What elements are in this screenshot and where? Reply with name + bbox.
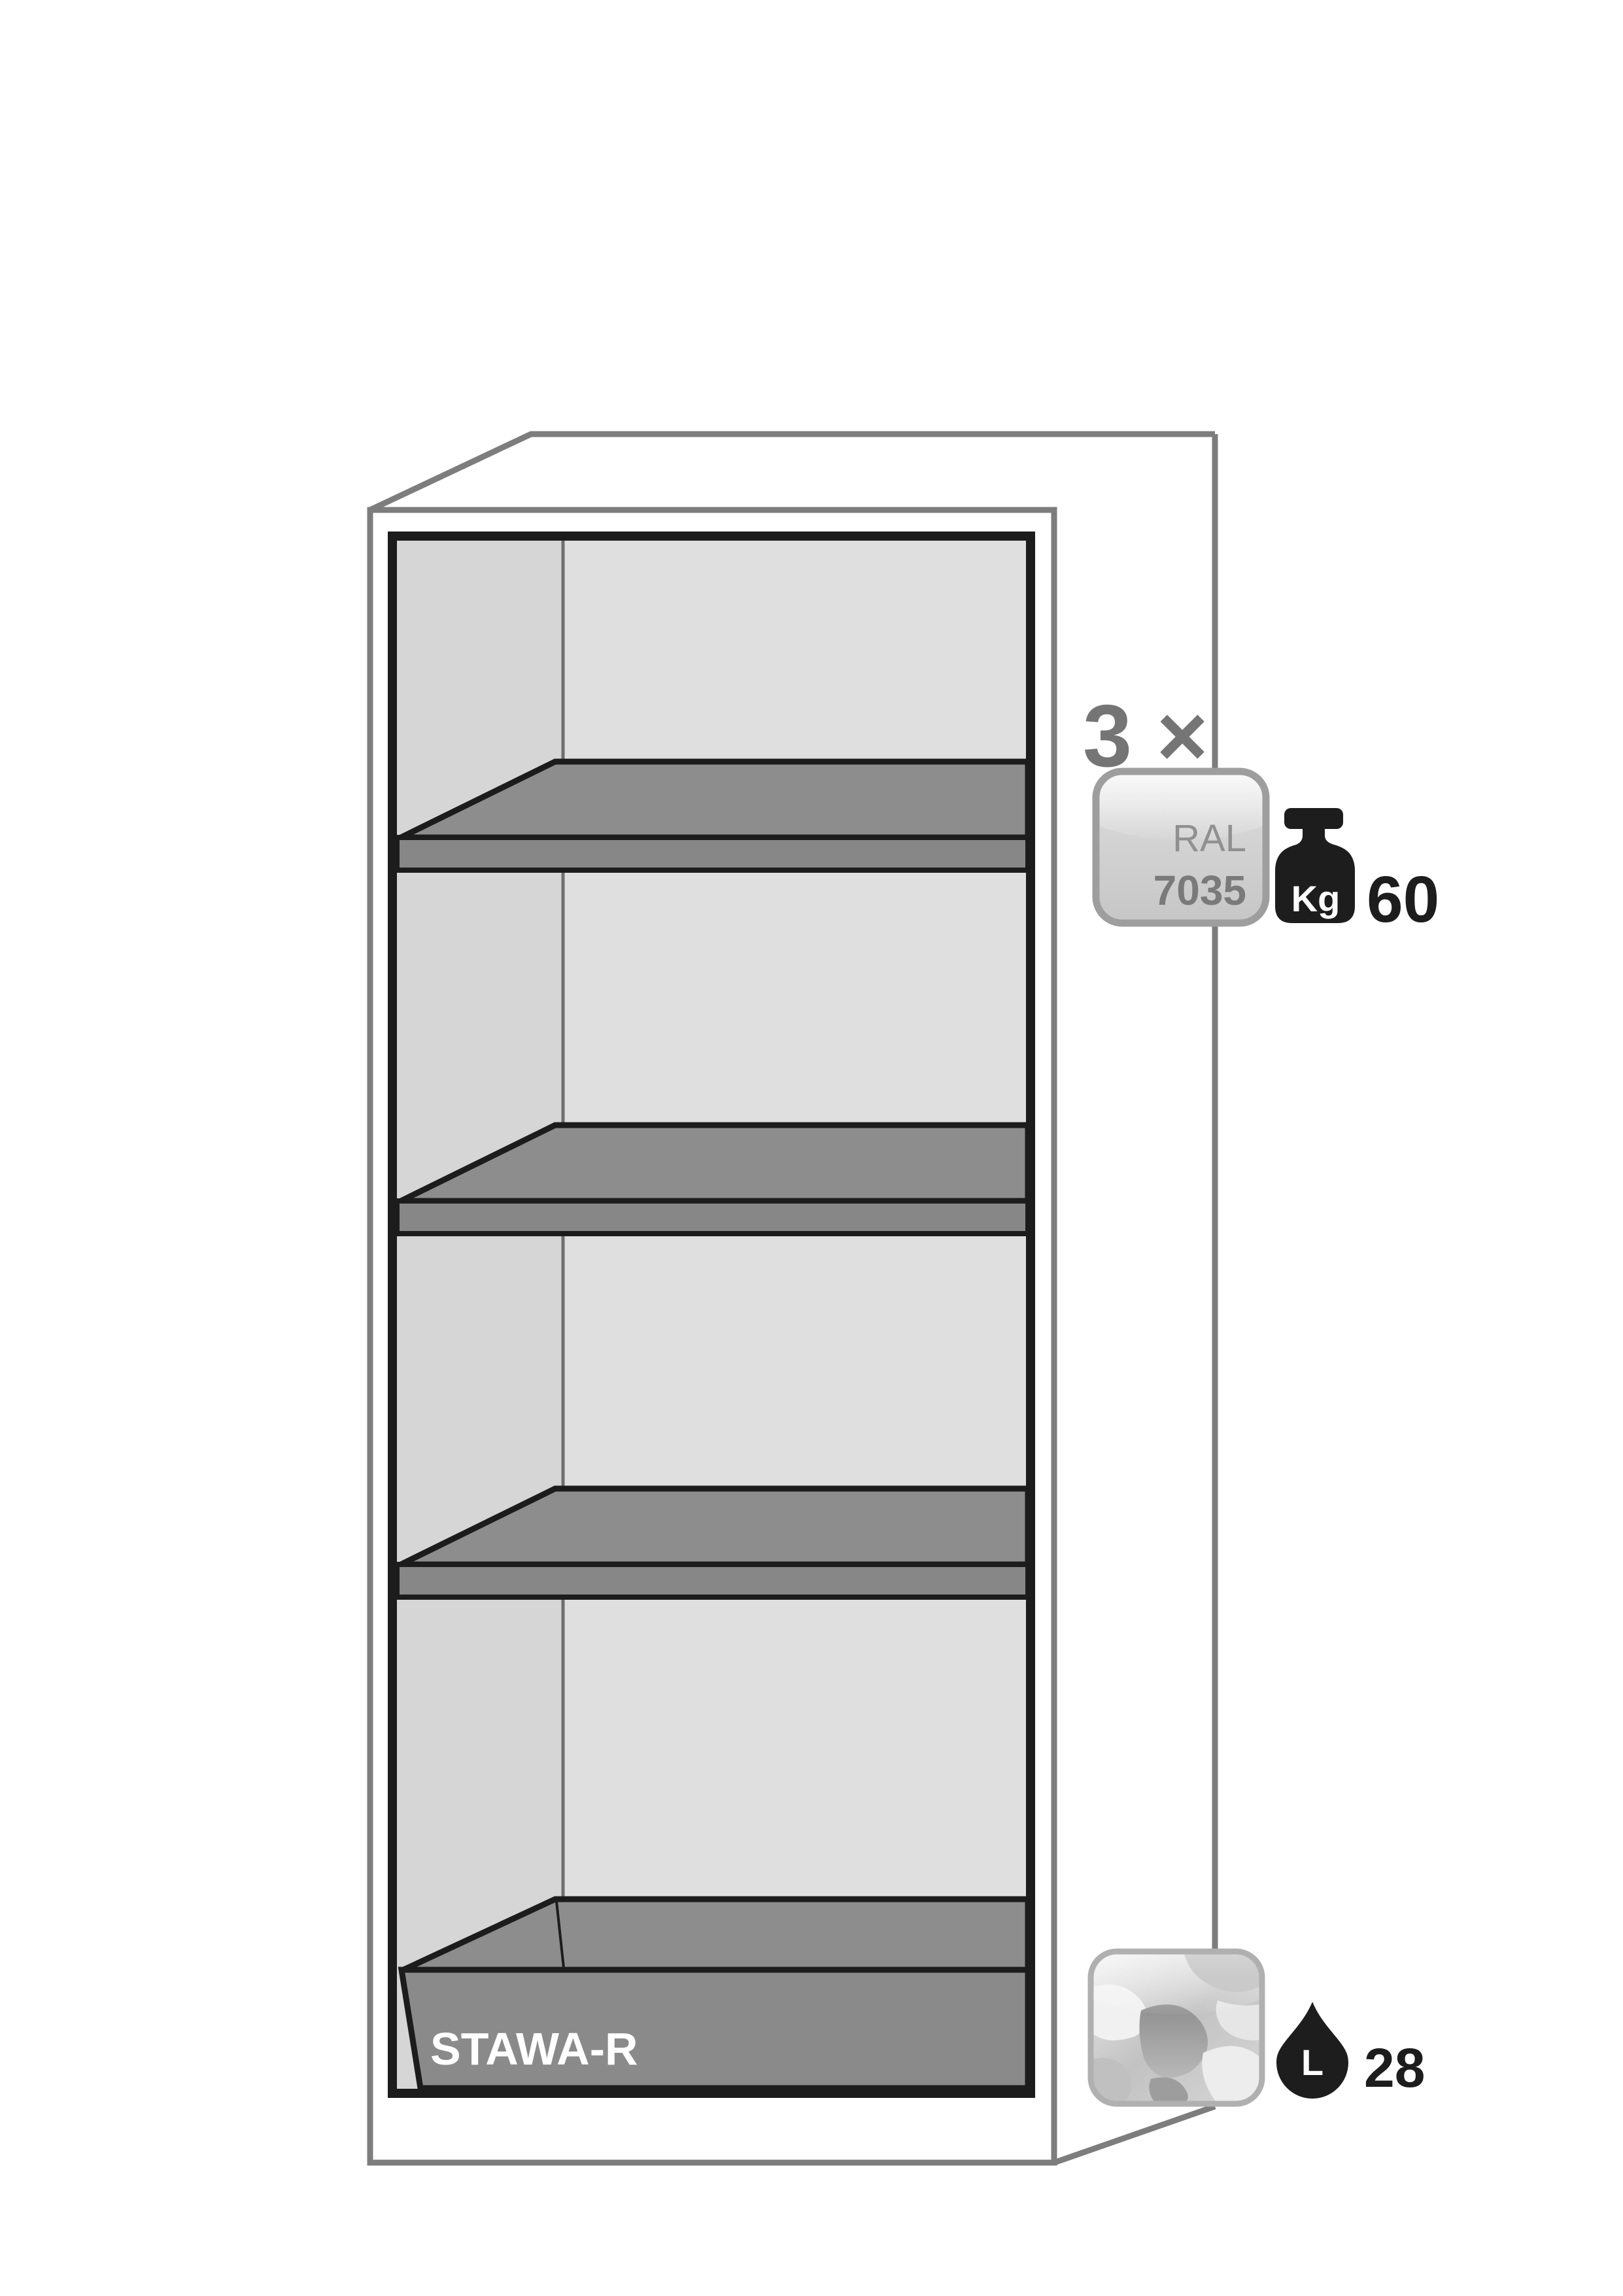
shelf-1-front [397,837,1028,870]
shelf-load-annotation: Kg 60 [1275,808,1439,936]
droplet-icon: L [1276,2002,1348,2099]
ral-badge-line2: 7035 [1153,867,1246,914]
sump-volume-annotation: L 28 [1276,2002,1425,2099]
shelf-3-front [397,1564,1028,1597]
sump-tray: STAWA-R [401,1899,1028,2088]
shelf-2-front [397,1201,1028,1234]
sump-volume-value: 28 [1364,2037,1425,2099]
droplet-icon-unit: L [1301,2042,1324,2083]
steel-badge-pattern [1091,1951,1262,2104]
sump-tray-label: STAWA-R [430,2023,638,2074]
cabinet-top-face [370,434,1215,510]
ral-badge-line1: RAL [1172,817,1246,860]
ral-7035-badge: RAL 7035 [1096,771,1266,923]
weight-icon-handle [1284,808,1343,829]
weight-icon: Kg [1275,808,1355,923]
shelf-load-value: 60 [1367,863,1439,936]
cabinet-bottom-right-edge [1054,2106,1215,2163]
safety-cabinet-diagram: STAWA-R 3 × RAL 7035 Kg 60 [0,0,1623,2296]
diagram-canvas: STAWA-R 3 × RAL 7035 Kg 60 [0,0,1623,2296]
cabinet-interior: STAWA-R [392,536,1031,2093]
weight-icon-unit: Kg [1291,878,1341,919]
steel-badge [1091,1951,1262,2104]
